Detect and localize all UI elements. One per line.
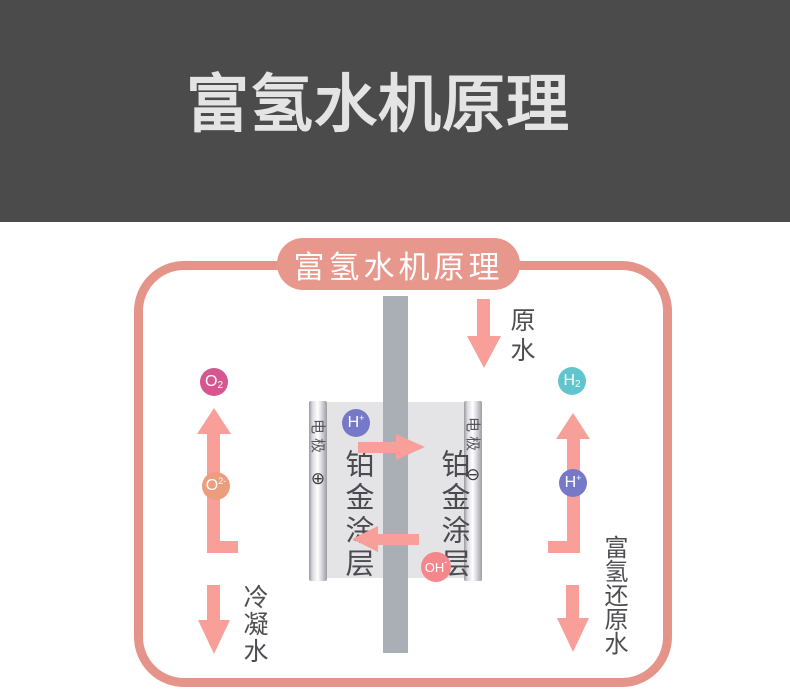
proton-badge-right: H+	[559, 469, 587, 497]
raw-water-arrow-shaft	[477, 299, 490, 337]
hydrogen-arrow-head	[556, 413, 590, 439]
proton-transfer-arrow-head	[396, 434, 425, 460]
hydroxide-transfer-arrow-head	[352, 526, 378, 552]
hydrogen-rich-water-arrow-head	[557, 618, 589, 652]
hydroxide-ion-badge: OH-	[421, 552, 451, 582]
hydrogen-rich-water-arrow-shaft	[566, 585, 579, 620]
condensed-water-label: 冷凝水	[236, 584, 272, 665]
proton-badge-left: H+	[342, 409, 370, 437]
raw-water-label: 原水	[503, 307, 539, 367]
o2-molecule-badge: O2	[200, 368, 228, 396]
page-title: 富氢水机原理	[186, 74, 570, 137]
hydroxide-transfer-arrow-shaft	[376, 534, 419, 545]
diagram-title: 富氢水机原理	[294, 242, 504, 287]
minus-in-circle-icon: ⊖	[464, 466, 482, 483]
page-header: 富氢水机原理	[0, 0, 790, 222]
electrode-anode-label: 电极	[309, 419, 326, 457]
raw-water-arrow-head	[467, 336, 501, 368]
condensed-water-arrow-head	[198, 620, 230, 654]
page: 富氢水机原理 电极 ⊕ 电极 ⊖ 铂金涂层 铂金涂层 SPE膜 SPE膜 O2 …	[0, 0, 790, 698]
condensed-water-arrow-shaft	[207, 585, 220, 622]
diagram-title-pill: 富氢水机原理	[277, 238, 520, 290]
proton-transfer-arrow-shaft	[358, 442, 398, 453]
oxygen-arrow-head	[197, 408, 231, 434]
plus-in-circle-icon: ⊕	[309, 470, 327, 487]
hydrogen-rich-water-label: 富氢还原水	[596, 535, 631, 655]
platinum-coating-left-label: 铂金涂层	[336, 449, 378, 581]
h2-molecule-badge: H2	[558, 367, 586, 395]
electrode-cathode-label: 电极	[464, 417, 481, 455]
spe-membrane-bar	[383, 296, 408, 653]
oxide-ion-badge: O2-	[202, 472, 230, 500]
